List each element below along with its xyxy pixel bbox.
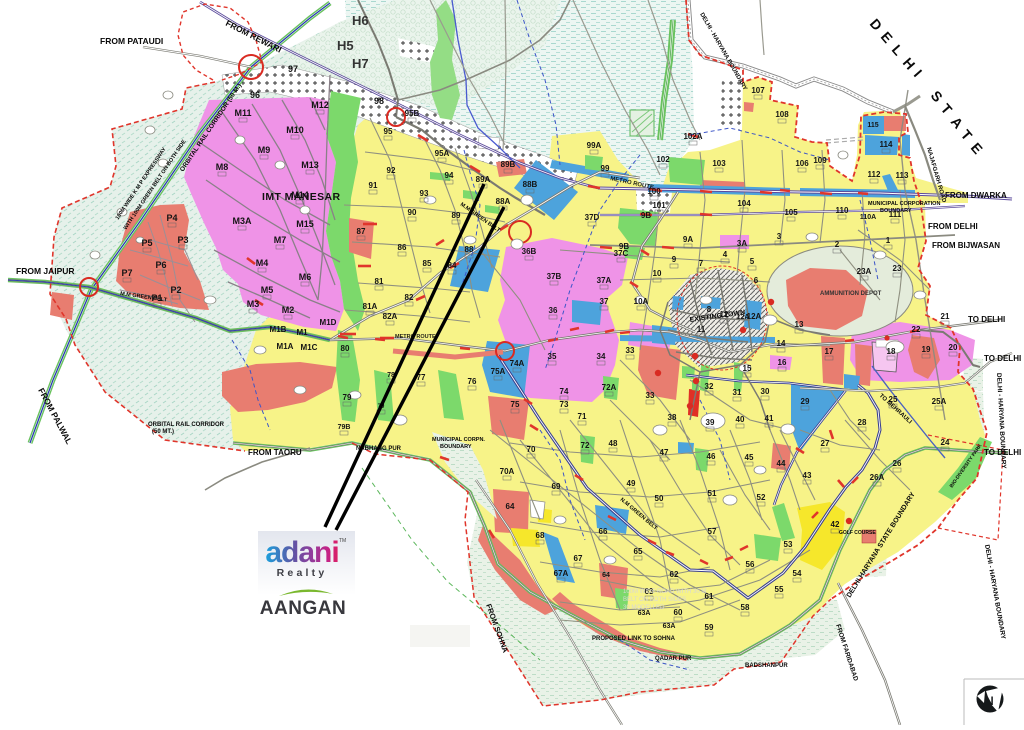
svg-text:M5: M5 [261, 285, 274, 295]
svg-text:93: 93 [420, 189, 429, 198]
svg-text:BELT ON BOTH SIDES: BELT ON BOTH SIDES [623, 597, 686, 603]
svg-text:99: 99 [601, 164, 610, 173]
svg-text:FROM BIJWASAN: FROM BIJWASAN [932, 241, 1000, 250]
svg-text:FROM DWARKA: FROM DWARKA [945, 191, 1007, 200]
svg-text:M3: M3 [247, 299, 260, 309]
svg-text:88: 88 [465, 245, 474, 254]
svg-text:58: 58 [741, 603, 750, 612]
svg-text:P6: P6 [155, 260, 166, 270]
svg-text:55: 55 [775, 585, 784, 594]
svg-text:10: 10 [653, 269, 662, 278]
svg-text:39: 39 [706, 418, 715, 427]
svg-text:TM: TM [339, 538, 346, 544]
svg-text:37C: 37C [614, 249, 629, 258]
svg-text:6: 6 [754, 276, 759, 285]
svg-text:82: 82 [405, 293, 414, 302]
svg-text:28: 28 [858, 418, 867, 427]
svg-text:89: 89 [452, 211, 461, 220]
svg-text:M15: M15 [296, 219, 314, 229]
svg-text:73: 73 [560, 400, 569, 409]
svg-text:88B: 88B [523, 180, 538, 189]
svg-text:31: 31 [733, 388, 742, 397]
svg-text:72: 72 [581, 441, 590, 450]
svg-text:86: 86 [398, 243, 407, 252]
svg-text:33: 33 [626, 346, 635, 355]
svg-text:60: 60 [674, 608, 683, 617]
svg-text:80: 80 [341, 344, 350, 353]
svg-text:74: 74 [560, 387, 569, 396]
svg-text:35: 35 [548, 352, 557, 361]
svg-text:85: 85 [423, 259, 432, 268]
svg-text:75A: 75A [491, 367, 506, 376]
svg-text:P2: P2 [170, 285, 181, 295]
svg-text:107: 107 [751, 86, 765, 95]
svg-text:44: 44 [777, 459, 786, 468]
svg-text:67: 67 [574, 554, 583, 563]
svg-text:14: 14 [777, 339, 786, 348]
svg-text:89B: 89B [501, 160, 516, 169]
svg-text:16: 16 [778, 358, 787, 367]
svg-text:AMMUNITION DEPOT: AMMUNITION DEPOT [820, 291, 882, 297]
svg-text:109: 109 [813, 156, 827, 165]
svg-text:82A: 82A [383, 312, 398, 321]
svg-text:10A: 10A [634, 297, 649, 306]
svg-text:TO DELHI: TO DELHI [984, 354, 1021, 363]
svg-text:47: 47 [660, 448, 669, 457]
svg-text:3: 3 [777, 232, 782, 241]
svg-text:69: 69 [552, 482, 561, 491]
svg-text:34: 34 [597, 352, 606, 361]
svg-text:94: 94 [445, 171, 454, 180]
svg-text:8: 8 [707, 305, 712, 314]
svg-text:H6: H6 [352, 13, 369, 28]
svg-text:64: 64 [506, 502, 515, 511]
svg-text:18: 18 [887, 347, 896, 356]
svg-text:32: 32 [705, 382, 714, 391]
svg-text:BOUNDARY: BOUNDARY [440, 444, 472, 450]
svg-text:114: 114 [880, 140, 893, 149]
svg-text:M4: M4 [256, 258, 269, 268]
svg-text:95: 95 [384, 127, 393, 136]
svg-text:41: 41 [765, 414, 774, 423]
svg-text:FROM DELHI: FROM DELHI [928, 222, 978, 231]
svg-text:2: 2 [835, 240, 840, 249]
svg-text:62: 62 [670, 570, 679, 579]
svg-text:64: 64 [602, 572, 610, 579]
svg-text:M6: M6 [299, 272, 312, 282]
svg-text:M1: M1 [296, 328, 308, 337]
svg-text:M12: M12 [311, 100, 329, 110]
svg-text:99A: 99A [587, 141, 602, 150]
svg-text:37B: 37B [547, 272, 562, 281]
svg-text:81A: 81A [363, 302, 378, 311]
svg-text:AANGAN: AANGAN [260, 598, 346, 619]
svg-text:23A: 23A [857, 267, 872, 276]
svg-text:9A: 9A [683, 235, 693, 244]
svg-text:57: 57 [708, 527, 717, 536]
svg-text:IMT MANESAR: IMT MANESAR [262, 191, 340, 203]
svg-text:101: 101 [652, 201, 666, 210]
svg-text:M2: M2 [282, 305, 295, 315]
svg-text:M7: M7 [274, 235, 287, 245]
svg-text:PROPOSED LINK TO SOHNA: PROPOSED LINK TO SOHNA [592, 636, 676, 642]
svg-text:88A: 88A [496, 197, 511, 206]
svg-text:M11: M11 [234, 108, 251, 118]
svg-text:M9: M9 [258, 145, 271, 155]
svg-text:(50 MT.): (50 MT.) [152, 429, 174, 435]
svg-text:67A: 67A [554, 569, 569, 578]
svg-text:115: 115 [867, 122, 878, 129]
svg-text:37A: 37A [597, 276, 612, 285]
svg-text:49: 49 [627, 479, 636, 488]
svg-text:9: 9 [672, 255, 677, 264]
svg-text:42: 42 [831, 520, 840, 529]
svg-text:P4: P4 [166, 213, 177, 223]
svg-text:adani: adani [265, 536, 338, 569]
svg-text:51: 51 [708, 489, 717, 498]
svg-text:M1A: M1A [277, 342, 294, 351]
svg-text:89A: 89A [476, 175, 491, 184]
svg-text:76: 76 [468, 377, 477, 386]
svg-text:79: 79 [343, 393, 352, 402]
svg-text:M1B: M1B [270, 325, 287, 334]
svg-text:13: 13 [795, 320, 804, 329]
svg-text:3A: 3A [737, 239, 747, 248]
svg-text:P5: P5 [141, 238, 152, 248]
svg-text:MUNICIPAL CORPORATION: MUNICIPAL CORPORATION [868, 201, 940, 207]
svg-text:H7: H7 [352, 56, 369, 71]
svg-text:113: 113 [896, 171, 909, 180]
svg-text:70: 70 [527, 445, 536, 454]
svg-text:Realty: Realty [277, 567, 328, 579]
svg-text:7: 7 [699, 259, 704, 268]
svg-text:9B: 9B [641, 211, 651, 220]
svg-text:26: 26 [893, 459, 902, 468]
svg-text:11: 11 [697, 325, 706, 334]
svg-text:90: 90 [408, 208, 417, 217]
svg-text:22: 22 [912, 325, 921, 334]
svg-text:19: 19 [922, 345, 931, 354]
svg-text:24: 24 [941, 438, 950, 447]
svg-text:102: 102 [656, 155, 670, 164]
svg-text:36: 36 [549, 306, 558, 315]
svg-text:36B: 36B [522, 247, 537, 256]
svg-text:103: 103 [712, 159, 726, 168]
svg-text:26A: 26A [870, 473, 885, 482]
svg-text:H5: H5 [337, 38, 354, 53]
svg-text:75: 75 [511, 400, 520, 409]
svg-text:23: 23 [893, 264, 902, 273]
svg-text:P3: P3 [177, 235, 188, 245]
svg-text:BADSHANPUR: BADSHANPUR [745, 663, 788, 669]
svg-text:74A: 74A [510, 359, 525, 368]
svg-text:63A: 63A [663, 623, 676, 630]
svg-text:P7: P7 [121, 268, 132, 278]
svg-text:81: 81 [375, 277, 384, 286]
svg-text:17: 17 [825, 347, 834, 356]
svg-text:95B: 95B [405, 109, 420, 118]
svg-text:46: 46 [707, 452, 716, 461]
svg-text:ORBITAL RAIL CORRIDOR: ORBITAL RAIL CORRIDOR [148, 422, 225, 428]
svg-text:56: 56 [746, 560, 755, 569]
svg-text:38: 38 [668, 413, 677, 422]
svg-text:QADAR PUR: QADAR PUR [655, 656, 692, 662]
svg-text:106: 106 [795, 159, 809, 168]
svg-text:M3A: M3A [232, 216, 252, 226]
svg-text:65: 65 [634, 547, 643, 556]
svg-text:37: 37 [600, 297, 609, 306]
svg-text:21: 21 [941, 312, 950, 321]
svg-text:95A: 95A [435, 149, 450, 158]
svg-text:30 MODELLED: 30 MODELLED [623, 605, 665, 611]
svg-text:104: 104 [737, 199, 751, 208]
svg-text:M13: M13 [301, 160, 319, 170]
svg-text:M1D: M1D [320, 318, 337, 327]
svg-text:MUNICIPAL CORPN.: MUNICIPAL CORPN. [432, 437, 485, 443]
svg-text:91: 91 [369, 181, 378, 190]
svg-text:33: 33 [646, 391, 655, 400]
svg-text:30: 30 [761, 387, 770, 396]
svg-text:40: 40 [736, 415, 745, 424]
svg-text:71: 71 [578, 412, 587, 421]
svg-text:5: 5 [750, 257, 755, 266]
svg-text:68: 68 [536, 531, 545, 540]
svg-text:M8: M8 [216, 162, 229, 172]
svg-text:52: 52 [757, 493, 766, 502]
svg-text:50: 50 [655, 494, 664, 503]
svg-text:92: 92 [387, 166, 396, 175]
svg-text:43: 43 [803, 471, 812, 480]
svg-text:27: 27 [821, 439, 830, 448]
svg-text:96: 96 [250, 90, 260, 100]
svg-text:FROM PATAUDI: FROM PATAUDI [100, 36, 163, 46]
svg-text:79B: 79B [338, 424, 351, 431]
svg-text:25A: 25A [932, 397, 947, 406]
svg-text:98: 98 [374, 96, 384, 106]
svg-text:20: 20 [949, 343, 958, 352]
svg-text:59: 59 [705, 623, 714, 632]
svg-text:108: 108 [775, 110, 789, 119]
svg-text:66: 66 [599, 527, 608, 536]
svg-text:FROM TAORU: FROM TAORU [248, 448, 302, 457]
svg-text:M1C: M1C [301, 343, 318, 352]
svg-text:102A: 102A [683, 132, 702, 141]
svg-text:29: 29 [801, 397, 810, 406]
svg-text:M10: M10 [286, 125, 304, 135]
svg-text:BOUNDARY: BOUNDARY [880, 208, 912, 214]
svg-text:72A: 72A [602, 383, 617, 392]
svg-text:105: 105 [784, 208, 798, 217]
svg-text:4: 4 [723, 250, 728, 259]
svg-text:N: N [985, 694, 994, 708]
svg-text:1: 1 [886, 236, 891, 245]
svg-text:48: 48 [609, 439, 618, 448]
svg-text:110: 110 [836, 206, 849, 215]
svg-text:37D: 37D [585, 213, 600, 222]
svg-text:45: 45 [745, 453, 754, 462]
svg-text:54: 54 [793, 569, 802, 578]
svg-text:63A: 63A [638, 610, 651, 617]
svg-text:15: 15 [743, 364, 752, 373]
svg-text:110A: 110A [860, 214, 876, 221]
svg-text:100M WIDE ROAD WITH 30 M: 100M WIDE ROAD WITH 30 M [623, 589, 706, 595]
svg-text:TO DELHI: TO DELHI [968, 315, 1005, 324]
svg-text:53: 53 [784, 540, 793, 549]
svg-text:97: 97 [288, 64, 298, 74]
svg-text:GOLF COURSE: GOLF COURSE [839, 530, 876, 536]
svg-text:87: 87 [357, 227, 366, 236]
svg-text:112: 112 [868, 170, 881, 179]
svg-text:FROM JAIPUR: FROM JAIPUR [16, 266, 75, 276]
svg-text:70A: 70A [500, 467, 515, 476]
